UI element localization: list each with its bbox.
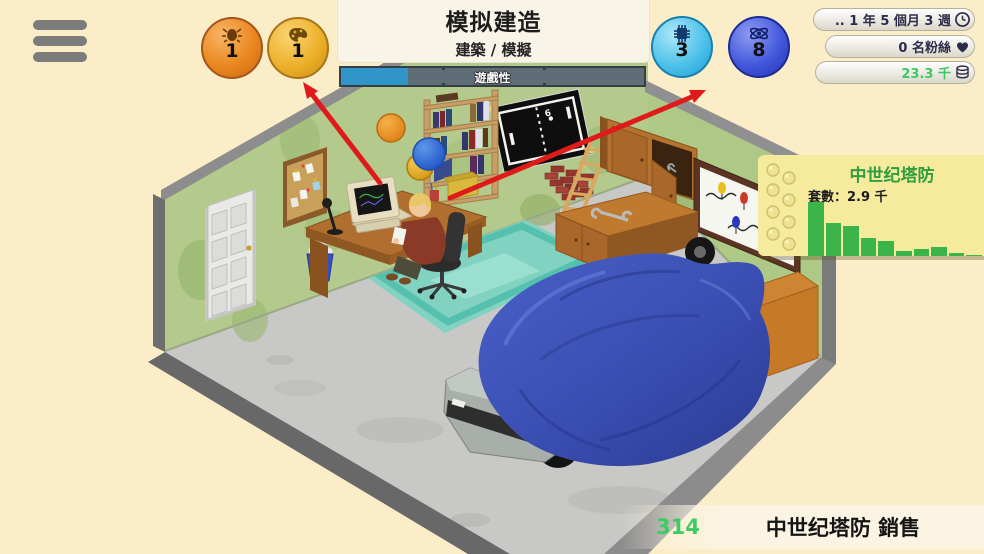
tooltip-game-title: 中世纪塔防	[804, 161, 980, 186]
gameplay-progress-label: 遊戲性	[341, 69, 644, 86]
gameplay-progress-bar: 遊戲性	[339, 66, 646, 87]
tech-orb	[413, 138, 445, 170]
sales-count: 314	[656, 515, 700, 539]
technology-points-badge[interactable]: 3	[651, 16, 713, 78]
sales-chart	[808, 200, 982, 256]
sales-tooltip: 中世纪塔防 套數：2.9 千	[758, 155, 984, 256]
sales-chart-bar	[826, 223, 842, 256]
sales-chart-bar	[949, 253, 965, 256]
sales-chart-bar	[966, 255, 982, 256]
sales-banner: 314 中世纪塔防 銷售	[620, 505, 984, 549]
sales-label: 中世纪塔防 銷售	[766, 512, 920, 542]
design-points-badge[interactable]: 1	[201, 17, 263, 79]
sales-chart-bar	[914, 249, 930, 256]
project-panel: 模拟建造 建築 / 模擬	[337, 0, 650, 63]
project-title: 模拟建造	[338, 3, 649, 37]
sales-chart-bar	[843, 226, 859, 256]
heart-icon	[954, 38, 971, 55]
coins-icon	[954, 64, 971, 81]
research-points-value: 8	[752, 39, 765, 61]
sales-chart-bar	[808, 202, 824, 256]
research-points-badge[interactable]: 8	[728, 16, 790, 78]
bubble-dots-icon	[762, 160, 800, 252]
sales-chart-bar	[896, 251, 912, 256]
door	[205, 189, 256, 322]
fans-text: 0 名粉絲	[898, 37, 951, 56]
project-genre: 建築 / 模擬	[338, 39, 649, 60]
money-text: 23.3 千	[901, 63, 951, 82]
fans-pill: 0 名粉絲	[825, 35, 975, 58]
sales-chart-bar	[861, 238, 877, 256]
menu-button[interactable]	[33, 20, 87, 62]
technology-points-value: 3	[675, 39, 688, 61]
clock-icon	[954, 11, 971, 28]
money-pill: 23.3 千	[815, 61, 975, 84]
door-knob	[246, 245, 251, 250]
graphics-points-badge[interactable]: 1	[267, 17, 329, 79]
game-dev-tycoon-screen: 6	[0, 0, 984, 554]
sales-chart-bar	[878, 241, 894, 256]
date-pill: .. 1 年 5 個月 3 週	[813, 8, 975, 31]
design-orb	[377, 114, 405, 142]
left-wall-edge	[153, 194, 165, 352]
graphics-points-value: 1	[291, 40, 304, 62]
date-text: .. 1 年 5 個月 3 週	[835, 10, 951, 29]
menu-icon	[33, 20, 87, 30]
design-points-value: 1	[225, 40, 238, 62]
sales-chart-bar	[931, 247, 947, 256]
